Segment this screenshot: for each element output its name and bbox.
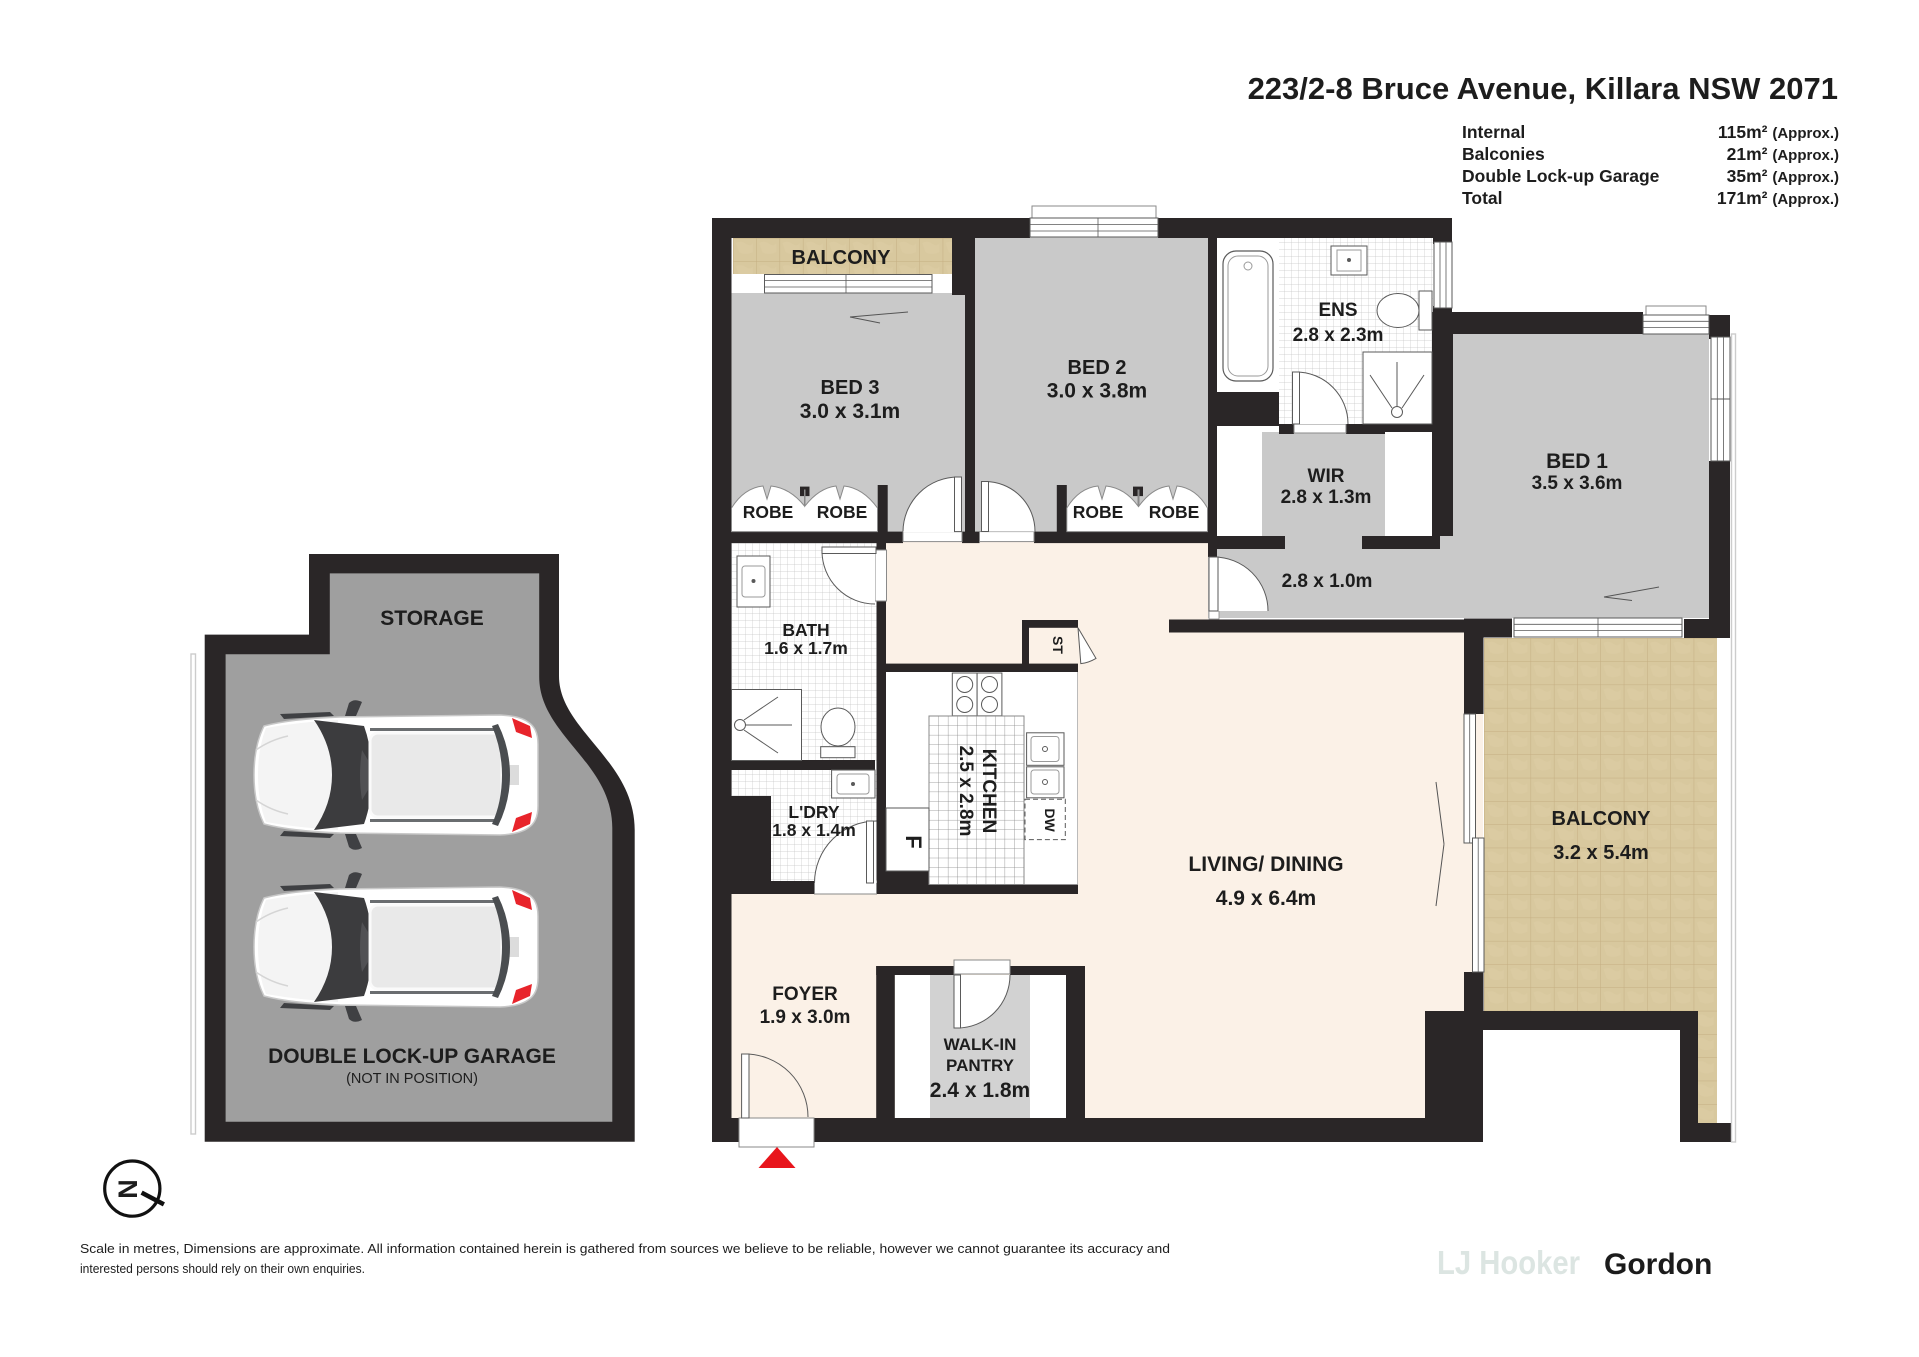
svg-text:BED 3: BED 3 (821, 377, 880, 399)
svg-text:DW: DW (1042, 808, 1058, 832)
svg-text:1.9 x 3.0m: 1.9 x 3.0m (760, 1007, 851, 1028)
svg-text:171m² (Approx.): 171m² (Approx.) (1717, 188, 1839, 208)
svg-text:3.0 x 3.8m: 3.0 x 3.8m (1047, 380, 1147, 403)
svg-text:BATH: BATH (782, 620, 829, 640)
svg-text:Scale in metres, Dimensions ar: Scale in metres, Dimensions are approxim… (80, 1241, 1170, 1256)
svg-text:Total: Total (1462, 188, 1503, 208)
svg-text:2.8 x 1.0m: 2.8 x 1.0m (1282, 571, 1373, 592)
svg-text:STORAGE: STORAGE (380, 607, 483, 630)
svg-text:BED 1: BED 1 (1546, 450, 1608, 473)
svg-text:BALCONY: BALCONY (1552, 808, 1652, 830)
svg-text:ROBE: ROBE (1073, 502, 1124, 522)
svg-text:BALCONY: BALCONY (792, 247, 892, 269)
svg-text:LJ Hooker: LJ Hooker (1437, 1244, 1580, 1281)
svg-text:Balconies: Balconies (1462, 144, 1545, 164)
svg-text:ROBE: ROBE (743, 502, 794, 522)
svg-text:(NOT IN POSITION): (NOT IN POSITION) (346, 1071, 478, 1087)
svg-text:ST: ST (1050, 636, 1066, 654)
svg-text:interested persons should rely: interested persons should rely on their … (80, 1261, 365, 1276)
svg-text:Internal: Internal (1462, 122, 1525, 142)
svg-text:ROBE: ROBE (817, 502, 868, 522)
svg-text:1.8 x 1.4m: 1.8 x 1.4m (772, 820, 856, 840)
svg-text:2.8 x 1.3m: 2.8 x 1.3m (1281, 487, 1372, 508)
svg-text:PANTRY: PANTRY (946, 1056, 1015, 1075)
svg-text:Gordon: Gordon (1604, 1248, 1712, 1281)
svg-text:F: F (901, 835, 926, 848)
svg-text:1.6 x 1.7m: 1.6 x 1.7m (764, 638, 848, 658)
svg-text:N: N (113, 1179, 143, 1199)
svg-text:WIR: WIR (1308, 466, 1345, 487)
svg-text:DOUBLE LOCK-UP GARAGE: DOUBLE LOCK-UP GARAGE (268, 1045, 556, 1068)
svg-text:WALK-IN: WALK-IN (944, 1035, 1017, 1054)
svg-text:2.4 x 1.8m: 2.4 x 1.8m (930, 1079, 1030, 1102)
svg-text:4.9 x 6.4m: 4.9 x 6.4m (1216, 887, 1316, 910)
svg-text:Double Lock-up Garage: Double Lock-up Garage (1462, 166, 1660, 186)
svg-text:3.0 x 3.1m: 3.0 x 3.1m (800, 400, 900, 423)
svg-text:BED 2: BED 2 (1068, 357, 1127, 379)
svg-text:2.5 x 2.8m: 2.5 x 2.8m (955, 746, 976, 837)
svg-text:L'DRY: L'DRY (788, 802, 839, 822)
svg-text:3.2 x 5.4m: 3.2 x 5.4m (1553, 842, 1649, 864)
svg-text:ROBE: ROBE (1149, 502, 1200, 522)
svg-text:223/2-8 Bruce Avenue, Killara: 223/2-8 Bruce Avenue, Killara NSW 2071 (1248, 71, 1838, 106)
svg-text:35m² (Approx.): 35m² (Approx.) (1727, 166, 1839, 186)
svg-text:LIVING/ DINING: LIVING/ DINING (1188, 853, 1343, 876)
svg-text:115m² (Approx.): 115m² (Approx.) (1718, 122, 1839, 142)
svg-text:21m² (Approx.): 21m² (Approx.) (1727, 144, 1839, 164)
svg-text:3.5 x 3.6m: 3.5 x 3.6m (1532, 473, 1623, 494)
svg-text:KITCHEN: KITCHEN (978, 749, 999, 833)
svg-text:2.8 x 2.3m: 2.8 x 2.3m (1293, 325, 1384, 346)
svg-text:ENS: ENS (1318, 300, 1357, 321)
svg-text:FOYER: FOYER (772, 984, 838, 1005)
